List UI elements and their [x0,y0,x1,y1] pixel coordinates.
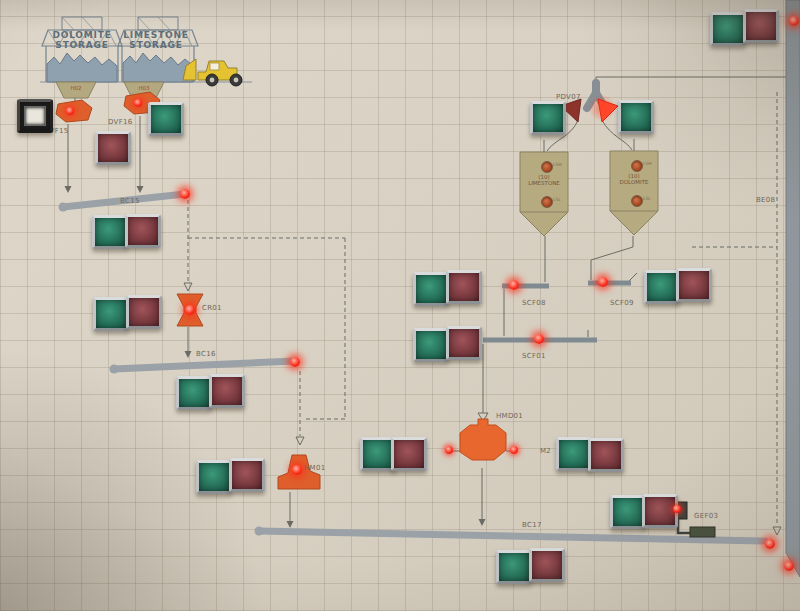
hmd01-label: HMD01 [496,412,523,420]
elevator-top-lamp [789,16,799,26]
dvf15-run-lamp [66,107,74,115]
bucket-elevator-bar [786,0,800,577]
hmd01-m2-start-button[interactable] [556,437,592,471]
bc15-run-lamp [180,189,190,199]
silo-right-low-level-label: LSL [643,196,651,201]
pdv07-label: PDV07 [556,93,581,101]
bc17-start-button[interactable] [496,550,532,584]
gef03-run-lamp [673,505,681,513]
silo-right-high-level-label: LSH [643,161,652,166]
m2-label: M2 [540,447,551,455]
mimic-panel: DOLOMITE STORAGE LIMESTONE STORAGE H02 H… [0,0,800,611]
scf09-start-button[interactable] [644,270,680,304]
silo-limestone-icon [520,140,568,236]
hmd01-m1-stop-button[interactable] [391,437,427,471]
scf08-stop-button[interactable] [446,270,482,304]
cr01-start-button[interactable] [93,297,129,331]
scf09-stop-button[interactable] [676,268,712,302]
hopper-label-right: H03 [126,85,162,91]
cr01-label: CR01 [202,304,222,312]
scf08-run-lamp [509,280,519,290]
hmd01-m2-lamp [510,446,518,454]
bc15-start-button[interactable] [92,215,128,249]
silo-right-low-lamp [631,195,643,207]
dvf-start-button[interactable] [148,102,184,136]
bc17-end-lamp [765,539,775,549]
pdv07-left-button[interactable] [530,101,566,135]
silo-right-text-line2: DOLOMITE [612,179,656,185]
silo-left-high-level-label: LSH [553,162,562,167]
bc16-stop-button[interactable] [209,374,245,408]
black-square-button[interactable] [17,99,53,133]
scf01-label: SCF01 [522,352,546,360]
be08-start-button[interactable] [710,12,746,46]
hm01-start-button[interactable] [196,460,232,494]
hm01-stop-button[interactable] [229,458,265,492]
vibro-feeder-dvf15-icon [56,100,92,122]
material-piles [47,53,193,82]
limestone-storage-title-line1: LIMESTONE [120,30,192,40]
scf09-label: SCF09 [610,299,634,307]
silo-left-text-line2: LIMESTONE [522,180,566,186]
hm01-run-lamp [292,465,302,475]
bc16-run-lamp [290,357,300,367]
elevator-bottom-lamp [784,561,794,571]
bc16-label: BC16 [196,350,216,358]
silo-left-high-lamp [541,161,553,173]
silo-left-low-level-label: LSL [553,197,561,202]
cr01-stop-button[interactable] [126,295,162,329]
dvf16-run-lamp [134,99,142,107]
scf01-stop-button[interactable] [446,326,482,360]
gef03-label: GEF03 [694,512,718,520]
be08-label: BE08 [756,196,775,204]
dvf16-label: DVF16 [108,118,133,126]
silo-dolomite-icon [610,139,658,235]
bc17-label: BC17 [522,521,542,529]
dolomite-storage-title-line1: DOLOMITE [46,30,118,40]
scf08-label: SCF08 [522,299,546,307]
be08-stop-button[interactable] [743,9,779,43]
bc17-stop-button[interactable] [529,548,565,582]
screw-feeder-bars [483,283,631,340]
bc15-label: BC15 [120,197,140,205]
scf08-start-button[interactable] [413,272,449,306]
dolomite-storage-title-line2: STORAGE [46,40,118,50]
scf01-run-lamp [534,334,544,344]
gef03-start-button[interactable] [610,495,646,529]
bc16-start-button[interactable] [176,376,212,410]
scf01-start-button[interactable] [413,328,449,362]
hmd01-m1-lamp [445,446,453,454]
dvf-stop-button[interactable] [95,131,131,165]
hmd01-m2-stop-button[interactable] [588,438,624,472]
limestone-storage-title-line2: STORAGE [120,40,192,50]
cr01-run-lamp [185,305,195,315]
mill-hmd01-icon [450,419,516,460]
pdv07-flap-glow [588,94,616,122]
pdv07-right-button[interactable] [618,100,654,134]
scf09-run-lamp [598,277,608,287]
hm01-label: HM01 [304,464,325,472]
silo-right-high-lamp [631,160,643,172]
bc15-stop-button[interactable] [125,214,161,248]
hopper-label-left: H02 [58,85,94,91]
silo-left-low-lamp [541,196,553,208]
